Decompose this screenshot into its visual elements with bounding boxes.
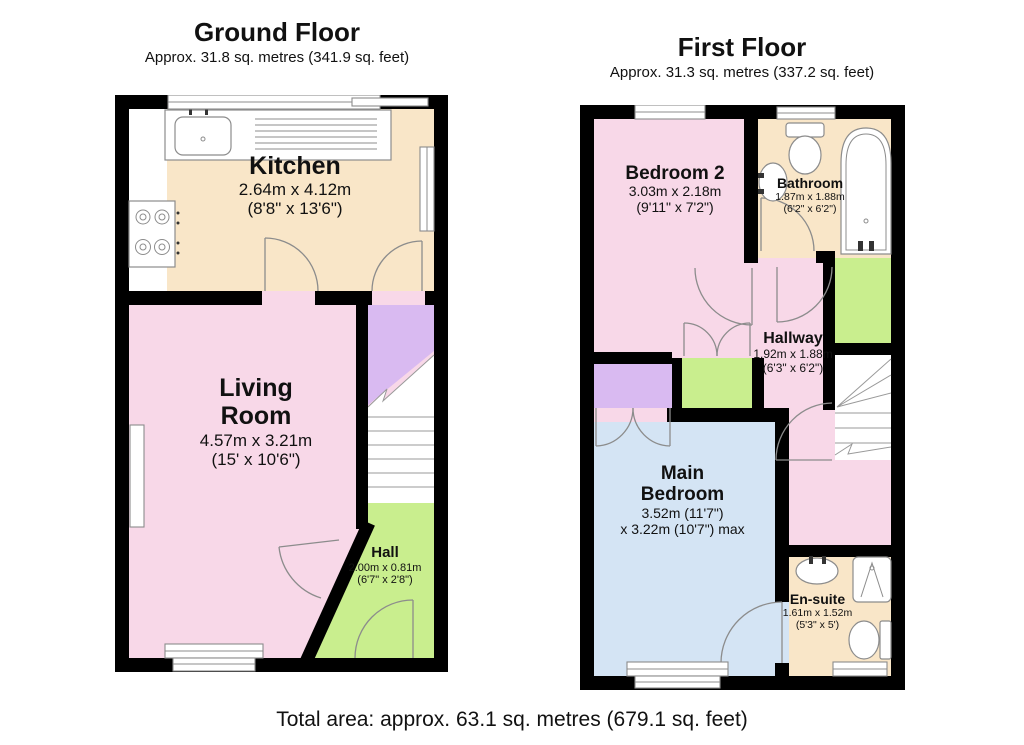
- first-floor-area: Approx. 31.3 sq. metres (337.2 sq. feet): [562, 65, 922, 82]
- bathroom-name: Bathroom: [755, 176, 865, 192]
- hallway-metric: 1.92m x 1.88m: [738, 348, 848, 362]
- main-bedroom-name: Main Bedroom: [628, 463, 738, 506]
- room-label-hall: Hall 2.00m x 0.81m (6'7" x 2'8"): [330, 545, 440, 587]
- bathroom-window: [777, 107, 835, 119]
- living-room-metric: 4.57m x 3.21m: [146, 431, 366, 450]
- main-bedroom-floor: [594, 422, 775, 676]
- main-bedroom-metric: 3.52m (11'7"): [600, 506, 765, 522]
- living-room-imperial: (15' x 10'6"): [146, 450, 366, 469]
- ensuite-name: En-suite: [765, 592, 870, 608]
- room-label-living-room: Living Room 4.57m x 3.21m (15' x 10'6"): [146, 374, 366, 469]
- ensuite-imperial: (5'3" x 5'): [765, 620, 870, 632]
- kitchen-imperial: (8'8" x 13'6"): [185, 199, 405, 218]
- main-bedroom-window: [627, 662, 728, 688]
- living-room-name: Living Room: [181, 374, 331, 431]
- front-doorway: [355, 644, 417, 658]
- kitchen-window-top: [168, 95, 380, 109]
- room-label-hallway: Hallway 1.92m x 1.88m (6'3" x 6'2"): [738, 330, 848, 375]
- ensuite-metric: 1.61m x 1.52m: [765, 608, 870, 620]
- first-floor-header: First Floor Approx. 31.3 sq. metres (337…: [562, 33, 922, 82]
- kitchen-name: Kitchen: [185, 152, 405, 180]
- ground-floor-header: Ground Floor Approx. 31.8 sq. metres (34…: [97, 18, 457, 67]
- kitchen-window-right: [420, 147, 434, 231]
- bedroom2-imperial: (9'11" x 7'2"): [600, 200, 750, 216]
- main-bedroom-metric2: x 3.22m (10'7") max: [600, 522, 765, 538]
- hallway-imperial: (6'3" x 6'2"): [738, 362, 848, 376]
- room-label-ensuite: En-suite 1.61m x 1.52m (5'3" x 5'): [765, 592, 870, 632]
- kitchen-metric: 2.64m x 4.12m: [185, 180, 405, 199]
- wardrobe-floor: [594, 364, 672, 408]
- ensuite-window: [833, 662, 887, 676]
- bedroom2-name: Bedroom 2: [600, 163, 750, 184]
- living-room-radiator: [130, 425, 144, 527]
- room-label-bathroom: Bathroom 1.87m x 1.88m (6'2" x 6'2"): [755, 176, 865, 216]
- ground-floor-area: Approx. 31.8 sq. metres (341.9 sq. feet): [97, 50, 457, 67]
- ground-floor-title: Ground Floor: [97, 18, 457, 47]
- kitchen-window-top-right: [352, 98, 428, 106]
- room-label-main-bedroom: Main Bedroom 3.52m (11'7") x 3.22m (10'7…: [600, 463, 765, 538]
- bedroom2-metric: 3.03m x 2.18m: [600, 184, 750, 200]
- hallway-name: Hallway: [738, 330, 848, 348]
- hall-imperial: (6'7" x 2'8"): [330, 574, 440, 586]
- bathroom-metric: 1.87m x 1.88m: [755, 192, 865, 204]
- total-area-text: Total area: approx. 63.1 sq. metres (679…: [0, 708, 1024, 732]
- living-room-window: [165, 644, 263, 671]
- toilet-icon: [786, 123, 824, 174]
- bathroom-imperial: (6'2" x 6'2"): [755, 204, 865, 216]
- hall-metric: 2.00m x 0.81m: [330, 562, 440, 574]
- first-floor-title: First Floor: [562, 33, 922, 62]
- room-label-kitchen: Kitchen 2.64m x 4.12m (8'8" x 13'6"): [185, 152, 405, 219]
- hob-icon: [129, 201, 180, 267]
- bedroom2-window: [635, 105, 705, 119]
- room-label-bedroom2: Bedroom 2 3.03m x 2.18m (9'11" x 7'2"): [600, 163, 750, 216]
- hall-name: Hall: [330, 545, 440, 562]
